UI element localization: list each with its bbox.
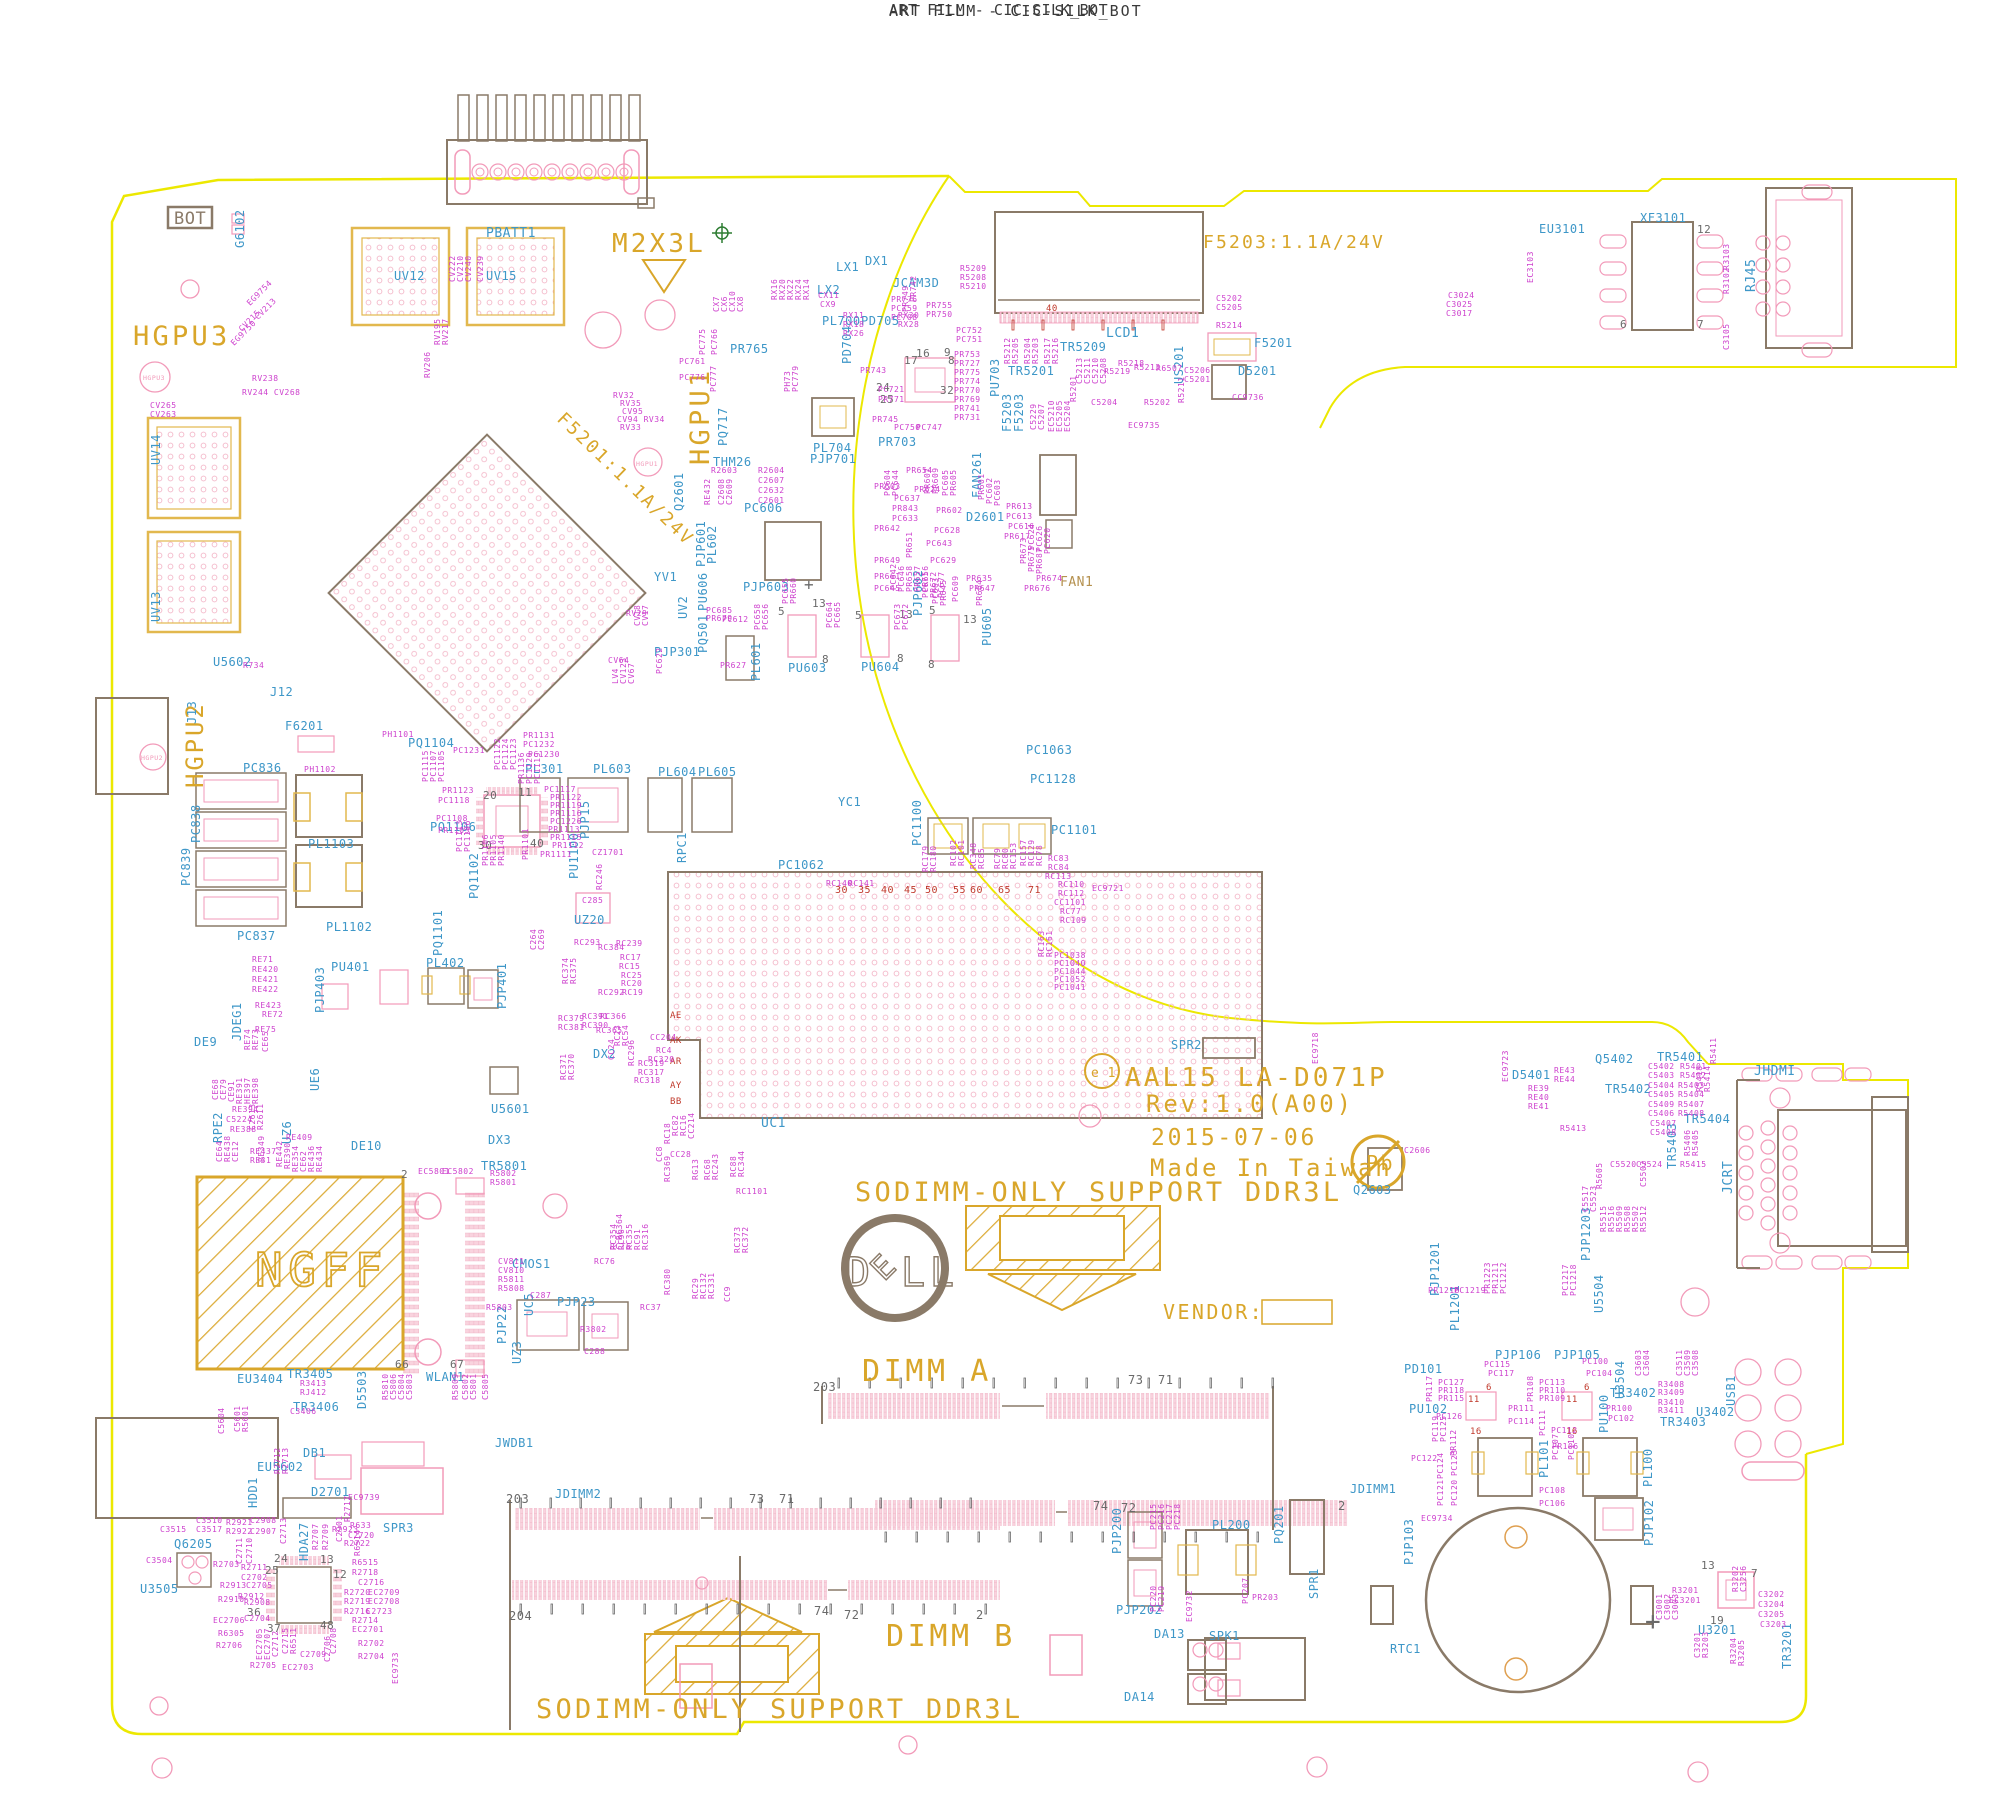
silkscreen-label: C5205: [1216, 303, 1243, 312]
silkscreen-label: R3203: [1701, 1631, 1710, 1658]
silkscreen-label: 19: [1710, 1614, 1724, 1627]
silkscreen-label: PC123: [1450, 1449, 1459, 1476]
silkscreen-label: R2711: [241, 1563, 268, 1572]
silkscreen-label: RC319: [638, 1059, 665, 1068]
silkscreen-label: R5414: [1703, 1065, 1712, 1092]
silkscreen-label: 66: [395, 1358, 409, 1371]
silkscreen-label: R5205: [1011, 337, 1020, 364]
silkscreen-label: 13: [1701, 1559, 1715, 1572]
silkscreen-label: DIMM A: [862, 1354, 992, 1389]
silkscreen-label: PR703: [878, 435, 917, 449]
silkscreen-label: C2609: [725, 478, 734, 505]
silkscreen-label: USB1: [1724, 1375, 1738, 1406]
silkscreen-label: C2704: [244, 1614, 271, 1623]
component-outline: [643, 260, 685, 292]
silkscreen-label: PR664: [975, 579, 984, 606]
pad-hole: [1739, 1166, 1753, 1180]
silkscreen-label: RC318: [634, 1076, 661, 1085]
silkscreen-label: PR731: [954, 413, 981, 422]
silkscreen-label: PC776: [679, 373, 706, 382]
silkscreen-label: R5803: [486, 1303, 513, 1312]
silkscreen-label: CV811: [498, 1257, 525, 1266]
silkscreen-label: R2718: [352, 1568, 379, 1577]
silkscreen-label: UV15: [486, 269, 517, 283]
silkscreen-label: C2710: [245, 1537, 254, 1564]
silkscreen-label: D5503: [355, 1370, 369, 1409]
component-outline: [995, 212, 1203, 313]
silkscreen-label: RC1101: [736, 1187, 768, 1196]
pad-hole: [1756, 236, 1770, 250]
silkscreen-label: RC15: [619, 962, 640, 971]
silkscreen-label: PQ1101: [431, 910, 445, 956]
silkscreen-label: PR742: [909, 275, 918, 302]
fiducial-circle: [150, 1697, 168, 1715]
silkscreen-label: CC214: [687, 1112, 696, 1139]
pad-hole: [1776, 258, 1790, 272]
silkscreen-label: FAN1: [1060, 575, 1093, 590]
component-outline: [1812, 1068, 1842, 1081]
silkscreen-label: EC5204: [1063, 400, 1072, 432]
silkscreen-label: M2X3L: [612, 229, 706, 259]
pad: [1600, 289, 1626, 302]
silkscreen-label: PC838: [189, 804, 203, 843]
silkscreen-label: RE349: [257, 1135, 266, 1162]
component-outline: [848, 1580, 1000, 1600]
silkscreen-label: R2603: [711, 466, 738, 475]
silkscreen-label: 204: [509, 1609, 532, 1623]
pin-tick: [768, 1604, 770, 1614]
silkscreen-label: R3102: [1722, 267, 1731, 294]
pin-tick: [629, 95, 640, 141]
pin-tick: [644, 1604, 646, 1614]
silkscreen-label: UZ3: [510, 1341, 524, 1364]
silkscreen-label: EC9721: [1092, 884, 1124, 893]
silkscreen-label: PC775: [698, 328, 707, 355]
fiducial-circle: [1307, 1757, 1327, 1777]
pad-hole: [1739, 1186, 1753, 1200]
component-outline: [157, 541, 231, 623]
silkscreen-label: RC76: [594, 1257, 615, 1266]
silkscreen-label: PR613: [1006, 502, 1033, 511]
pin-tick: [850, 1498, 852, 1508]
silkscreen-label: PC656: [761, 603, 770, 630]
silkscreen-label: PL1103: [308, 837, 354, 851]
silkscreen-label: R5408: [1678, 1109, 1705, 1118]
silkscreen-label: R2707: [311, 1523, 320, 1550]
pin-tick: [1164, 1532, 1166, 1542]
silkscreen-label: PBATT1: [486, 226, 536, 241]
pad-hole: [1739, 1206, 1753, 1220]
silkscreen-label: PU401: [331, 960, 370, 974]
component-outline: [1812, 1256, 1842, 1269]
silkscreen-label: CX11: [818, 291, 839, 300]
silkscreen-label: DE10: [351, 1139, 382, 1153]
silkscreen-label: PR775: [954, 368, 981, 377]
pad-hole: [1783, 1126, 1797, 1140]
silkscreen-label: LL: [901, 1250, 959, 1296]
pad-hole: [1761, 1197, 1775, 1211]
silkscreen-label: C3203: [1760, 1620, 1787, 1629]
silkscreen-label: RC370: [567, 1053, 576, 1080]
silkscreen-label: PU603: [788, 661, 827, 675]
silkscreen-label: C5403: [1648, 1071, 1675, 1080]
silkscreen-label: PR109: [1539, 1394, 1566, 1403]
silkscreen-label: C3510: [196, 1516, 223, 1525]
silkscreen-label: PC124: [1436, 1452, 1445, 1479]
silkscreen-label: 7: [1697, 318, 1704, 331]
silkscreen-label: C3105: [1722, 323, 1731, 350]
silkscreen-label: PJP23: [557, 1295, 596, 1309]
silkscreen-label: CE12: [231, 1141, 240, 1162]
silkscreen-label: PC100: [1582, 1357, 1609, 1366]
silkscreen-label: RC153: [1009, 842, 1018, 869]
silkscreen-label: RC37: [640, 1303, 661, 1312]
silkscreen-label: PC1218: [1569, 1264, 1578, 1296]
silkscreen-label: PR753: [954, 350, 981, 359]
pad-hole: [1775, 1431, 1801, 1457]
silkscreen-label: PC1062: [778, 858, 824, 872]
component-outline: [362, 1442, 424, 1466]
component-outline: [465, 1192, 485, 1374]
pin-tick: [985, 1604, 987, 1614]
pin-tick: [954, 1604, 956, 1614]
silkscreen-label: PR676: [1024, 584, 1051, 593]
silkscreen-label: C3256: [1739, 1565, 1748, 1592]
silkscreen-label: PC643: [926, 539, 953, 548]
silkscreen-label: PC121: [1436, 1479, 1445, 1506]
component-outline: [988, 1274, 1136, 1310]
silkscreen-label: C3508: [1691, 1349, 1700, 1376]
pin-tick: [916, 1532, 918, 1542]
silkscreen-label: PQ201: [1272, 1505, 1286, 1544]
silkscreen-label: PC721: [878, 385, 905, 394]
fiducial-circle: [585, 312, 621, 348]
silkscreen-label: PC1105: [437, 750, 446, 782]
silkscreen-label: PR111: [1508, 1404, 1535, 1413]
silkscreen-label: R2720: [344, 1588, 371, 1597]
silkscreen-label: RC20: [621, 979, 642, 988]
component-outline: [765, 522, 821, 580]
silkscreen-label: CC204: [650, 1033, 677, 1042]
component-outline: [1046, 1393, 1270, 1419]
silkscreen-label: 5: [855, 609, 862, 622]
silkscreen-label: EU3404: [237, 1372, 283, 1386]
silkscreen-label: 8: [928, 658, 935, 671]
silkscreen-label: PR1111: [540, 850, 572, 859]
pin-tick: [582, 1604, 584, 1614]
silkscreen-label: PR1101: [521, 828, 530, 860]
silkscreen-label: Q2603: [1353, 1183, 1392, 1197]
silkscreen-label: R6514: [353, 1529, 362, 1556]
silkscreen-label: C5404: [1648, 1081, 1675, 1090]
silkscreen-label: JDEG1: [230, 1002, 244, 1041]
silkscreen-label: EC2707: [263, 1628, 272, 1660]
pin-tick: [551, 1604, 553, 1614]
silkscreen-label: R5413: [1560, 1124, 1587, 1133]
silkscreen-label: RE40: [1528, 1093, 1549, 1102]
silkscreen-label: PC125: [1439, 1415, 1448, 1442]
silkscreen-label: PR674: [1036, 574, 1063, 583]
silkscreen-label: RC239: [616, 939, 643, 948]
silkscreen-label: 60: [970, 885, 983, 896]
silkscreen-label: RX26: [843, 329, 864, 338]
silkscreen-label: EC2709: [368, 1588, 400, 1597]
silkscreen-label: C288: [584, 1347, 605, 1356]
silkscreen-label: RE409: [286, 1133, 313, 1142]
silkscreen-label: PR660: [789, 577, 798, 604]
silkscreen-label: HDD1: [246, 1477, 260, 1508]
pin-tick: [799, 1604, 801, 1614]
silkscreen-label: 40: [1046, 304, 1058, 314]
silkscreen-label: C5805: [481, 1373, 490, 1400]
silkscreen-label: PR743: [860, 366, 887, 375]
fiducial-circle: [543, 1194, 567, 1218]
silkscreen-label: PC603: [993, 479, 1002, 506]
fiducial-circle: [152, 1758, 172, 1778]
silkscreen-label: 73: [749, 1492, 764, 1506]
silkscreen-label: C3517: [196, 1525, 223, 1534]
silkscreen-label: RV244 CV268: [242, 388, 300, 397]
silkscreen-label: SPK1: [1209, 1629, 1240, 1643]
component-outline: [277, 1567, 331, 1623]
component-outline: [283, 1498, 351, 1518]
silkscreen-label: 17: [904, 354, 918, 367]
silkscreen-label: R2704: [358, 1652, 385, 1661]
silkscreen-label: AE: [670, 1011, 682, 1021]
pad-hole: [1775, 1359, 1801, 1385]
silkscreen-label: PC837: [237, 929, 276, 943]
silkscreen-label: AY: [670, 1081, 682, 1091]
component-outline: [1000, 312, 1198, 323]
component-outline: [1766, 188, 1852, 348]
fiducial-circle: [1209, 1677, 1223, 1691]
component-outline: [455, 150, 470, 194]
silkscreen-label: XF3101: [1640, 211, 1686, 225]
silkscreen-label: RC78: [1035, 845, 1044, 866]
silkscreen-label: CC9736: [1232, 393, 1264, 402]
silkscreen-label: PL601: [749, 642, 763, 681]
pin-tick: [1040, 1532, 1042, 1542]
silkscreen-label: R2611: [256, 1103, 265, 1130]
silkscreen-label: RC18: [663, 1123, 672, 1144]
silkscreen-label: R3205: [1737, 1639, 1746, 1666]
silkscreen-label: RE420: [252, 965, 279, 974]
silkscreen-label: RCT6: [610, 1242, 631, 1251]
silkscreen-label: RC180: [929, 845, 938, 872]
component-outline: [346, 863, 362, 891]
pad-hole: [566, 168, 574, 176]
silkscreen-label: PR843: [892, 504, 919, 513]
silkscreen-label: C3515: [160, 1525, 187, 1534]
silkscreen-label: PC779: [791, 365, 800, 392]
silkscreen-label: EC2708: [368, 1597, 400, 1606]
silkscreen-label: PC612: [722, 615, 749, 624]
component-outline: [196, 812, 286, 848]
silkscreen-label: RE71: [252, 955, 273, 964]
silkscreen-label: PC1212: [1499, 1262, 1508, 1294]
silkscreen-label: RC243: [711, 1153, 720, 1180]
component-outline: [428, 968, 464, 1004]
silkscreen-label: LCD1: [1106, 326, 1139, 341]
component-outline: [490, 1067, 518, 1094]
silkscreen-label: PC777: [709, 365, 718, 392]
silkscreen-label: 65: [998, 885, 1011, 896]
pad-hole: [1783, 1146, 1797, 1160]
silkscreen-label: CV67: [627, 663, 636, 684]
component-outline: [1632, 222, 1693, 330]
silkscreen-label: RC316: [641, 1223, 650, 1250]
silkscreen-label: PC1100: [910, 800, 924, 846]
silkscreen-label: PC708: [891, 313, 918, 322]
silkscreen-label: PC620: [1043, 527, 1052, 554]
component-outline: [1178, 1545, 1198, 1575]
silkscreen-label: PR774: [954, 377, 981, 386]
component-outline: [1236, 1545, 1256, 1575]
silkscreen-label: 74: [1093, 1499, 1108, 1513]
silkscreen-label: 6: [1486, 1383, 1492, 1393]
silkscreen-label: RC296: [627, 1039, 636, 1066]
silkscreen-label: PL100: [1641, 1448, 1655, 1487]
silkscreen-label: UZ20: [574, 913, 605, 927]
silkscreen-label: BOT: [174, 209, 206, 229]
silkscreen-label: R3413: [300, 1379, 327, 1388]
silkscreen-label: 16: [1470, 1427, 1482, 1437]
silkscreen-label: R2921: [226, 1518, 253, 1527]
pad-hole: [1761, 1159, 1775, 1173]
silkscreen-label: 32: [940, 384, 954, 397]
pad-hole: [1783, 1206, 1797, 1220]
silkscreen-label: RE41: [1528, 1102, 1549, 1111]
silkscreen-label: PR1112: [552, 841, 584, 850]
silkscreen-label: PC629: [930, 556, 957, 565]
silkscreen-label: PR1131: [523, 731, 555, 740]
silkscreen-label: R5210: [960, 282, 987, 291]
component-outline: [447, 140, 647, 204]
pad-hole: [1761, 1140, 1775, 1154]
pin-tick: [1024, 1378, 1026, 1388]
component-outline: [1595, 1498, 1643, 1540]
page-title: ART FILM - CIC-SILK_BOT: [889, 2, 1143, 20]
pin-tick: [591, 95, 602, 141]
silkscreen-label: RV206: [423, 351, 432, 378]
silkscreen-label: JCRT: [1721, 1161, 1736, 1194]
pin-tick: [1055, 1378, 1057, 1388]
silkscreen-label: 20: [483, 789, 497, 802]
silkscreen-label: PC622: [655, 647, 664, 674]
pin-tick: [613, 1604, 615, 1614]
silkscreen-label: PR203: [1252, 1593, 1279, 1602]
silkscreen-label: PC115: [1484, 1360, 1511, 1369]
silkscreen-label: 6: [1584, 1383, 1590, 1393]
silkscreen-label: CX9: [820, 300, 836, 309]
silkscreen-label: 40: [530, 837, 544, 850]
silkscreen-label: CE65: [261, 1031, 270, 1052]
pad: [1600, 262, 1626, 275]
pin-tick: [1226, 1532, 1228, 1542]
pin-tick: [1257, 1532, 1259, 1542]
component-outline: [1802, 343, 1832, 357]
silkscreen-label: DX3: [488, 1133, 511, 1147]
component-outline: [204, 780, 278, 802]
silkscreen-label: PC107: [1551, 1433, 1560, 1460]
silkscreen-label: 11: [1566, 1395, 1578, 1405]
silkscreen-label: PU604: [861, 660, 900, 674]
silkscreen-label: 203: [506, 1492, 529, 1506]
silkscreen-label: UV13: [149, 591, 163, 622]
pin-tick: [892, 1604, 894, 1614]
pin-tick: [640, 1498, 642, 1508]
pin-tick: [923, 1604, 925, 1614]
silkscreen-label: RJ412: [300, 1388, 327, 1397]
component-outline: [861, 615, 889, 657]
silkscreen-label: SPR1: [1307, 1568, 1321, 1599]
silkscreen-label: R5203: [1031, 337, 1040, 364]
component-outline: [361, 1468, 443, 1514]
pad-hole: [1776, 280, 1790, 294]
silkscreen-label: R5208: [960, 273, 987, 282]
pin-tick: [1071, 1532, 1073, 1542]
silkscreen-label: C3025: [1446, 300, 1473, 309]
silkscreen-label: PC665: [833, 601, 842, 628]
silkscreen-label: RV217: [441, 318, 450, 345]
silkscreen-label: 2: [401, 1168, 408, 1181]
silkscreen-label: PJP401: [495, 963, 509, 1009]
silkscreen-label: PC766: [710, 328, 719, 355]
silkscreen-label: TR3402: [1610, 1386, 1656, 1400]
pin-tick: [553, 95, 564, 141]
silkscreen-label: C5801: [469, 1373, 478, 1400]
silkscreen-label: EC2701: [352, 1625, 384, 1634]
pin-tick: [1148, 1378, 1150, 1388]
silkscreen-label: PJP403: [313, 967, 327, 1013]
silkscreen-label: PR117: [1425, 1375, 1434, 1402]
silkscreen-label: R3103: [1722, 243, 1731, 270]
silkscreen-label: SPR3: [383, 1521, 414, 1535]
silkscreen-label: 8: [897, 652, 904, 665]
silkscreen-label: RE73: [251, 1029, 260, 1050]
silkscreen-label: PC117: [1488, 1369, 1515, 1378]
silkscreen-label: D2601: [966, 510, 1005, 524]
silkscreen-label: PJP701: [810, 452, 856, 466]
silkscreen-label: R2713: [281, 1447, 290, 1474]
silkscreen-label: EC2703: [282, 1663, 314, 1672]
silkscreen-label: PC114: [1508, 1417, 1535, 1426]
fiducial-circle: [1209, 1643, 1223, 1657]
silkscreen-label: C2907: [250, 1527, 277, 1536]
silkscreen-label: 72: [1121, 1501, 1136, 1515]
silkscreen-label: Q5402: [1595, 1052, 1634, 1066]
silkscreen-label: PC613: [1006, 512, 1033, 521]
silkscreen-label: C5803: [405, 1373, 414, 1400]
pin-tick: [1102, 1532, 1104, 1542]
silkscreen-label: 203: [813, 1380, 836, 1394]
silkscreen-label: CC28: [670, 1150, 691, 1159]
silkscreen-label: 11: [1468, 1395, 1480, 1405]
silkscreen-label: PC747: [916, 423, 943, 432]
silkscreen-label: PC108: [1539, 1486, 1566, 1495]
silkscreen-label: RC366: [600, 1012, 627, 1021]
silkscreen-label: RC161: [1045, 930, 1054, 957]
silkscreen-label: R5202: [1144, 398, 1171, 407]
silkscreen-label: +: [804, 575, 814, 594]
silkscreen-label: SPR2: [1171, 1038, 1202, 1052]
silkscreen-label: RC344: [737, 1150, 746, 1177]
pin-tick: [861, 1604, 863, 1614]
silkscreen-label: R5405: [1691, 1129, 1700, 1156]
pin-tick: [838, 1378, 840, 1388]
component-outline: [1872, 1097, 1908, 1252]
silkscreen-label: NGFF: [255, 1243, 388, 1297]
